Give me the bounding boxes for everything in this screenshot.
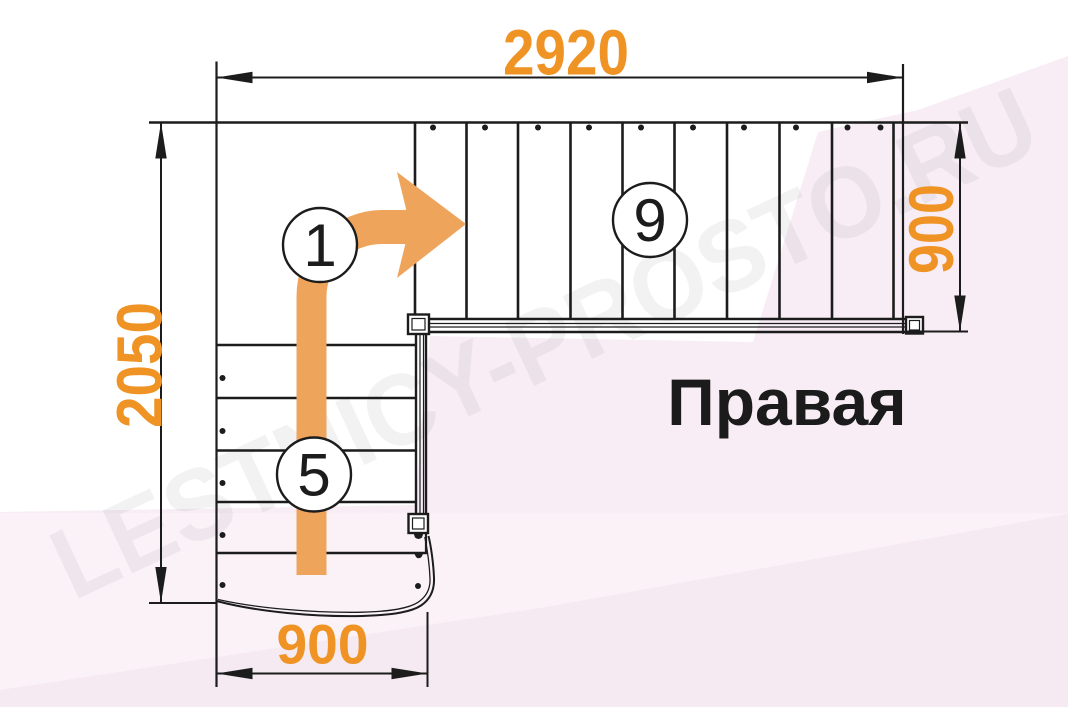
svg-text:1: 1 xyxy=(303,212,336,279)
svg-text:2920: 2920 xyxy=(503,17,629,89)
svg-text:900: 900 xyxy=(897,184,967,274)
svg-text:Правая: Правая xyxy=(667,365,906,439)
svg-text:2050: 2050 xyxy=(103,302,175,428)
svg-text:900: 900 xyxy=(277,613,369,676)
svg-text:5: 5 xyxy=(297,442,330,509)
svg-text:9: 9 xyxy=(633,187,666,254)
